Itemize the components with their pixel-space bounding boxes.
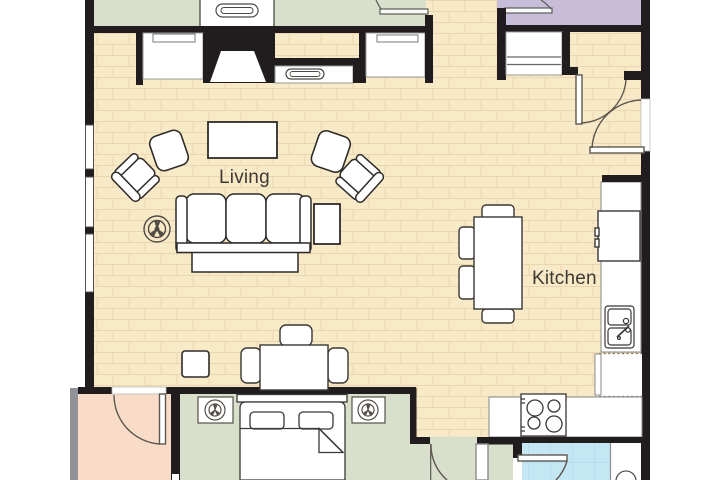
svg-text:Living: Living	[219, 167, 270, 188]
svg-text:Kitchen: Kitchen	[532, 268, 597, 289]
